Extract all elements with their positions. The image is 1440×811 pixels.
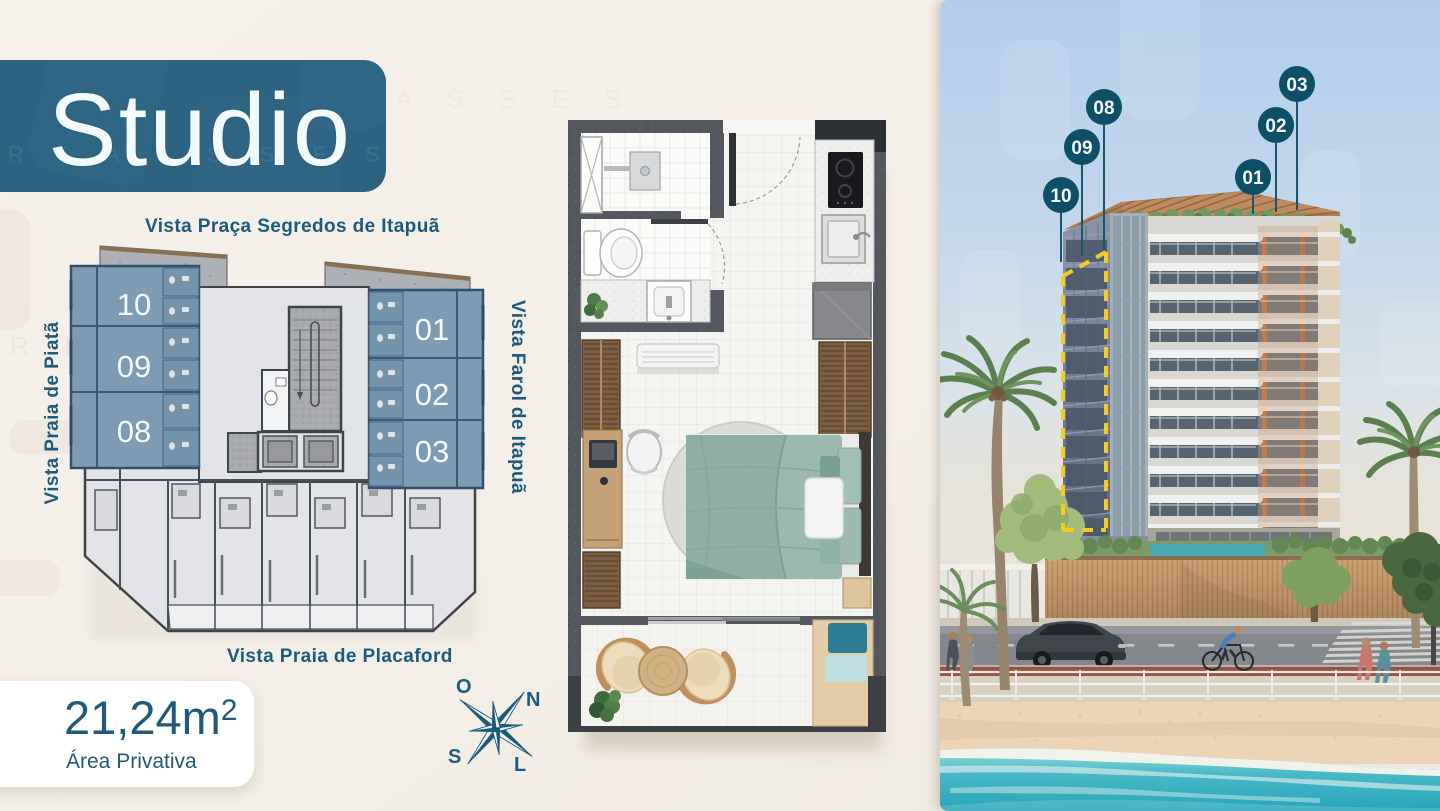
svg-text:02: 02 bbox=[415, 377, 449, 412]
svg-text:01: 01 bbox=[415, 312, 449, 347]
svg-text:L: L bbox=[514, 754, 526, 776]
svg-text:09: 09 bbox=[117, 349, 151, 384]
svg-text:10: 10 bbox=[1050, 186, 1071, 207]
svg-text:08: 08 bbox=[117, 414, 151, 449]
svg-text:08: 08 bbox=[1093, 98, 1114, 119]
svg-text:09: 09 bbox=[1071, 138, 1092, 159]
svg-text:01: 01 bbox=[1242, 168, 1264, 189]
svg-text:N: N bbox=[526, 689, 540, 711]
svg-text:02: 02 bbox=[1265, 116, 1286, 137]
svg-text:10: 10 bbox=[117, 287, 151, 322]
svg-text:03: 03 bbox=[415, 434, 449, 469]
svg-text:S: S bbox=[448, 746, 461, 768]
svg-text:03: 03 bbox=[1286, 75, 1307, 96]
svg-text:O: O bbox=[456, 676, 472, 698]
